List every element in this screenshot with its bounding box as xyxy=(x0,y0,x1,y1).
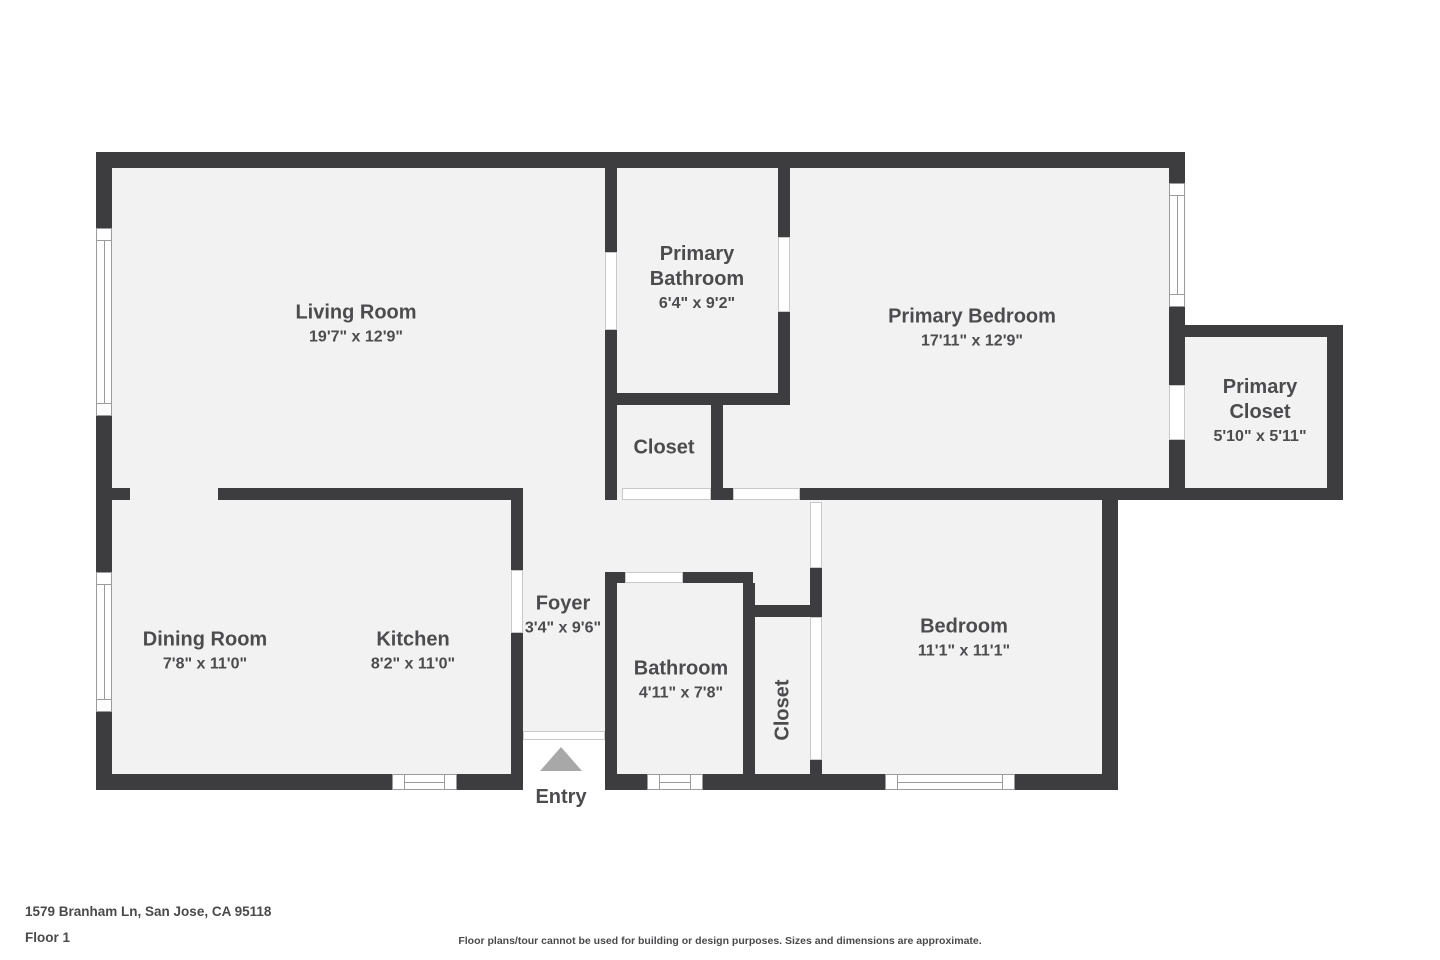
wall xyxy=(218,488,523,500)
dining-room-label: Dining Room 7'8" x 11'0" xyxy=(110,628,300,675)
footer-address: 1579 Branham Ln, San Jose, CA 95118 xyxy=(25,904,271,919)
kitchen-dims: 8'2" x 11'0" xyxy=(328,655,498,675)
window xyxy=(647,774,703,790)
primary-bedroom-name: Primary Bedroom xyxy=(832,305,1112,330)
kitchen-label: Kitchen 8'2" x 11'0" xyxy=(328,628,498,675)
door-opening xyxy=(625,572,683,583)
bedroom-label: Bedroom 11'1" x 11'1" xyxy=(859,615,1069,662)
door-opening xyxy=(810,617,822,760)
bedroom-closet-name: Closet xyxy=(771,679,796,740)
wall xyxy=(1102,500,1118,790)
primary-bathroom-name: Primary Bathroom xyxy=(632,242,762,292)
wall xyxy=(96,774,523,790)
wall xyxy=(810,760,822,790)
wall xyxy=(711,488,733,500)
window xyxy=(885,774,1015,790)
door-opening xyxy=(622,488,711,500)
wall xyxy=(96,488,130,500)
hall-closet-name: Closet xyxy=(609,436,719,461)
entry-label: Entry xyxy=(535,786,586,809)
kitchen-name: Kitchen xyxy=(328,628,498,653)
entry-door-opening xyxy=(523,731,605,740)
primary-closet-label: Primary Closet 5'10" x 5'11" xyxy=(1200,375,1320,447)
wall xyxy=(605,393,790,405)
wall xyxy=(96,152,1185,168)
bedroom-dims: 11'1" x 11'1" xyxy=(859,642,1069,662)
foyer-dims: 3'4" x 9'6" xyxy=(503,619,623,639)
dining-room-name: Dining Room xyxy=(110,628,300,653)
window xyxy=(1169,183,1185,307)
dining-room-dims: 7'8" x 11'0" xyxy=(110,655,300,675)
primary-bathroom-label: Primary Bathroom 6'4" x 9'2" xyxy=(632,242,762,314)
primary-bedroom-dims: 17'11" x 12'9" xyxy=(832,332,1112,352)
floor-plan: Living Room 19'7" x 12'9" Primary Bathro… xyxy=(0,0,1440,960)
wall xyxy=(800,488,1343,500)
door-opening xyxy=(733,488,800,500)
wall xyxy=(1175,325,1343,337)
bedroom-name: Bedroom xyxy=(859,615,1069,640)
window xyxy=(96,228,112,416)
bathroom-name: Bathroom xyxy=(601,657,761,682)
living-room-dims: 19'7" x 12'9" xyxy=(246,328,466,348)
wall xyxy=(810,568,822,617)
primary-bedroom-label: Primary Bedroom 17'11" x 12'9" xyxy=(832,305,1112,352)
wall xyxy=(1327,325,1343,500)
foyer-name: Foyer xyxy=(503,592,623,617)
window xyxy=(392,774,457,790)
wall xyxy=(511,488,523,790)
hall-closet-label: Closet xyxy=(609,436,719,461)
door-opening xyxy=(1169,385,1185,440)
bedroom-closet-label: Closet xyxy=(771,679,796,740)
door-opening xyxy=(778,237,790,312)
door-opening xyxy=(810,502,822,568)
foyer-label: Foyer 3'4" x 9'6" xyxy=(503,592,623,639)
footer-disclaimer: Floor plans/tour cannot be used for buil… xyxy=(0,935,1440,947)
primary-bathroom-dims: 6'4" x 9'2" xyxy=(632,294,762,314)
primary-closet-name: Primary Closet xyxy=(1200,375,1320,425)
bathroom-label: Bathroom 4'11" x 7'8" xyxy=(601,657,761,704)
primary-closet-dims: 5'10" x 5'11" xyxy=(1200,427,1320,447)
entry-arrow-icon xyxy=(540,747,582,771)
living-room-name: Living Room xyxy=(246,301,466,326)
door-opening xyxy=(605,252,617,330)
bathroom-dims: 4'11" x 7'8" xyxy=(601,684,761,704)
living-room-label: Living Room 19'7" x 12'9" xyxy=(246,301,466,348)
